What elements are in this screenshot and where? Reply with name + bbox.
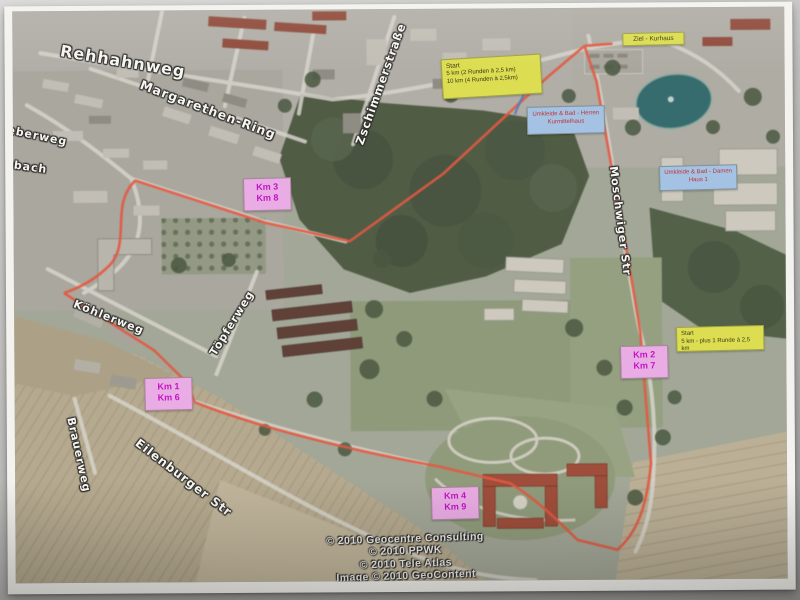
imagery-credits: © 2010 Geocentre Consulting © 2010 PPWK … <box>245 528 566 584</box>
start-right-line1: 5 km - plus 1 Runde à 2,5 km <box>681 337 759 354</box>
start-right-label: Start 5 km - plus 1 Runde à 2,5 km <box>676 325 765 352</box>
km-marker-line: Km 9 <box>432 501 478 513</box>
umkleide-herren-label: Umkleide & Bad - Herren Kurmittelhaus <box>527 105 606 135</box>
km-marker-line: Km 8 <box>244 193 290 205</box>
umkleide-damen-label: Umkleide & Bad - Damen Haus 1 <box>659 164 738 191</box>
aerial-imagery <box>12 7 787 584</box>
hospital-complex <box>425 416 616 541</box>
printed-map-paper: Rehhahnweg Margarethen-Ring Zschimmerstr… <box>4 2 796 595</box>
km-marker-line: Km 7 <box>621 360 667 372</box>
km-marker-2-7: Km 2 Km 7 <box>620 345 669 379</box>
ziel-text: Ziel - Kurhaus <box>633 35 674 43</box>
ziel-label: Ziel - Kurhaus <box>622 32 684 46</box>
km-marker-line: Km 6 <box>146 392 192 404</box>
photographed-course-map: Rehhahnweg Margarethen-Ring Zschimmerstr… <box>0 0 800 600</box>
km-marker-1-6: Km 1 Km 6 <box>144 377 193 411</box>
km-marker-3-8: Km 3 Km 8 <box>243 177 292 211</box>
km-marker-4-9: Km 4 Km 9 <box>431 486 480 520</box>
aerial-map: Rehhahnweg Margarethen-Ring Zschimmerstr… <box>12 7 787 584</box>
start-main-label: Start 5 km (2 Runden à 2,5 km) 10 km (4 … <box>441 54 543 100</box>
